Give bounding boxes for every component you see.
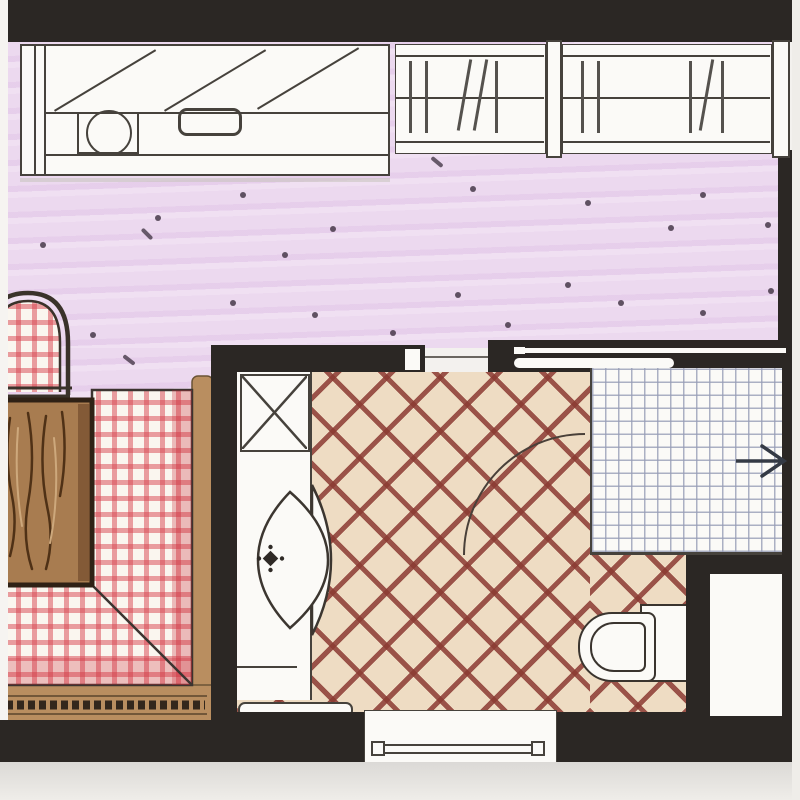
window-glazing-line [385, 752, 531, 754]
floor-speckle [470, 186, 476, 192]
glass-hatch-tick [597, 61, 600, 133]
glass-hatch-tick [425, 61, 428, 133]
kitchen-counter [20, 44, 390, 176]
counter-cooktop [178, 108, 242, 136]
floor-speckle [765, 222, 771, 228]
floor-speckle [330, 226, 336, 232]
wall-top [8, 0, 792, 42]
sliding-door-stop [514, 347, 525, 354]
bench-seat-shade [0, 658, 192, 685]
floor-speckle [668, 225, 674, 231]
floor-speckle [700, 192, 706, 198]
sliding-door-panel [514, 358, 674, 368]
dining-table [0, 400, 92, 585]
floor-speckle [230, 300, 236, 306]
window-glazing-line [396, 97, 544, 99]
cabinet-x-mark [242, 376, 307, 449]
sliding-door-rail [518, 348, 786, 353]
floor-speckle [565, 282, 571, 288]
toilet-seat [590, 622, 646, 672]
glass-hatch-tick [581, 61, 584, 133]
floor-plan-canvas [0, 0, 800, 800]
wall-bathroom-left [211, 345, 237, 720]
glass-hatch-tick [409, 61, 412, 133]
window-glazing-line [563, 97, 770, 99]
arch-chair [0, 293, 72, 396]
vanity-end-line [237, 666, 297, 668]
wall-bottom-bathroom [211, 712, 364, 762]
paper-margin-left [0, 0, 8, 720]
counter-end-panel-line [34, 46, 36, 174]
wall-bathroom-top-left [211, 345, 425, 374]
shower-entry-arrow [736, 444, 792, 478]
window-top-a [395, 44, 546, 154]
floor-speckle [505, 322, 511, 328]
door-pocket-jamb [405, 349, 420, 370]
floor-speckle [40, 242, 46, 248]
window-glazing-end-block [531, 741, 545, 756]
floor-speckle [282, 252, 288, 258]
floor-speckle [768, 288, 774, 294]
window-top-b [562, 44, 772, 154]
counter-front-edge [46, 154, 388, 156]
tall-cabinet [240, 374, 310, 452]
paper-margin-right [792, 0, 800, 800]
glass-hatch-tick [457, 59, 472, 130]
window-end-post [772, 40, 790, 158]
counter-shadow [20, 178, 390, 182]
floor-speckle [455, 292, 461, 298]
floor-speckle [618, 300, 624, 306]
paper-margin-bottom [0, 762, 800, 800]
floor-speckle [700, 310, 706, 316]
floor-speckle [155, 215, 161, 221]
sink-bowl-circle [86, 110, 132, 156]
vanity-basin [240, 480, 352, 640]
window-frame-line [396, 141, 544, 143]
counter-sink [77, 112, 139, 154]
floor-speckle [390, 330, 396, 336]
window-glazing-line [385, 744, 531, 746]
bench-frame-side [192, 376, 213, 690]
floor-speckle [240, 192, 246, 198]
bench-seat-shade [172, 390, 192, 685]
window-frame-line [563, 55, 770, 57]
wall-bottom-left [0, 720, 213, 762]
window-frame-line [563, 141, 770, 143]
wall-niche [710, 574, 782, 716]
cabinet-diagonal [54, 49, 156, 111]
dining-nook [0, 288, 215, 724]
window-frame-line [396, 55, 544, 57]
floor-speckle [312, 312, 318, 318]
window-glazing-end-block [371, 741, 385, 756]
window-mullion-post [546, 40, 562, 158]
glass-hatch-tick [721, 61, 724, 133]
glass-hatch-tick [699, 59, 714, 130]
floor-speckle [585, 200, 591, 206]
cabinet-diagonal [164, 49, 266, 111]
cabinet-diagonal [257, 47, 359, 109]
glass-hatch-tick [495, 61, 498, 133]
glass-hatch-tick [473, 59, 488, 130]
glass-hatch-tick [689, 61, 692, 133]
